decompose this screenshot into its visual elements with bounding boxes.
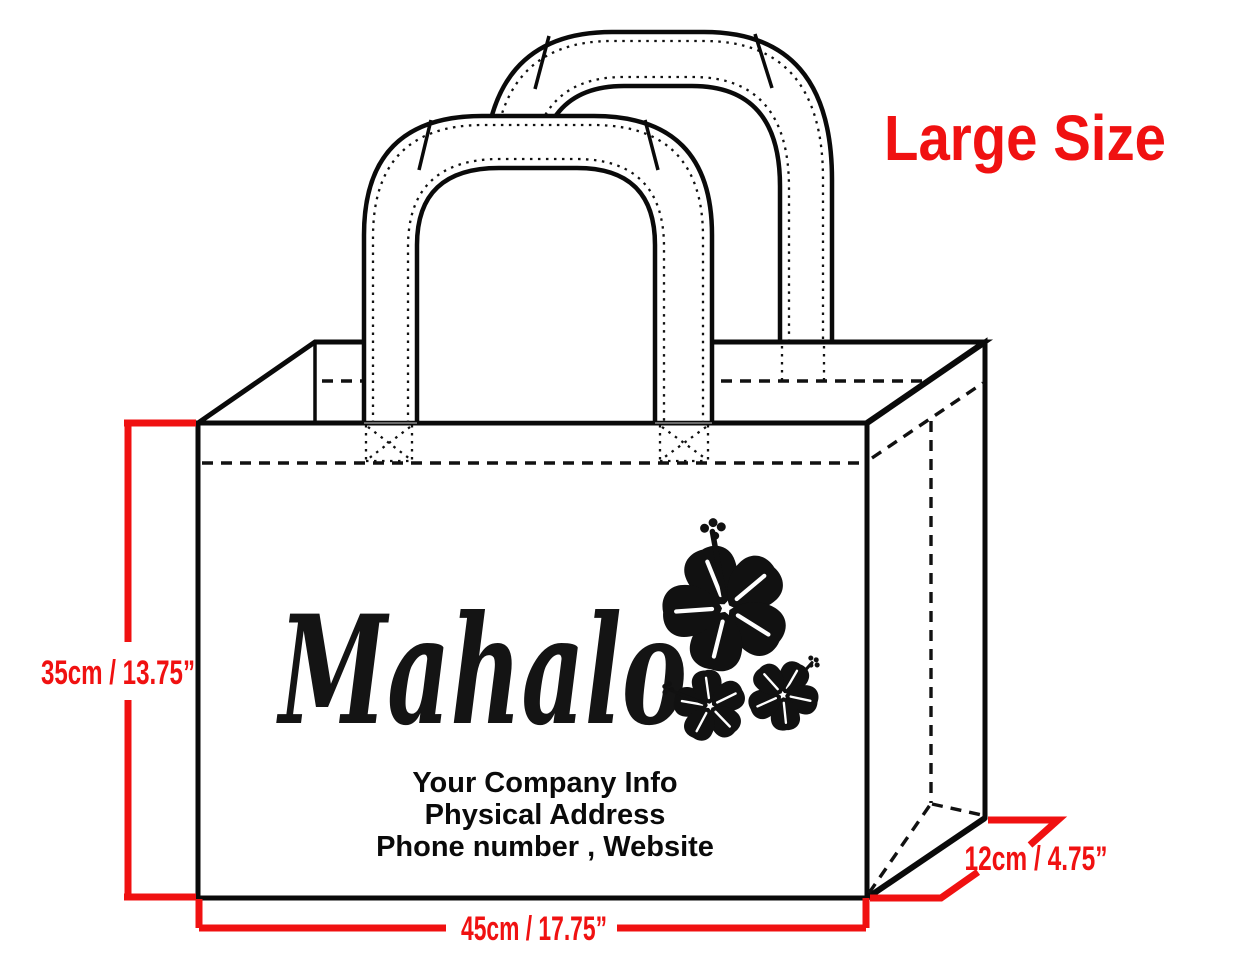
- tote-bag-size-diagram: Mahalo Your Company Info Physical Addres…: [0, 0, 1260, 980]
- right-side-gusset: [867, 342, 985, 898]
- height-dimension-label: 35cm / 13.75”: [41, 654, 195, 692]
- company-info-line-1: Your Company Info: [412, 767, 677, 799]
- company-info-line-2: Physical Address: [425, 799, 666, 831]
- bag-sketch-canvas: Mahalo Your Company Info Physical Addres…: [0, 0, 1260, 980]
- depth-dimension-label: 12cm / 4.75”: [965, 840, 1108, 878]
- company-info-block: Your Company Info Physical Address Phone…: [376, 767, 714, 863]
- front-handle: [364, 116, 712, 423]
- brand-script-text: Mahalo: [276, 583, 687, 759]
- width-dimension-label: 45cm / 17.75”: [461, 910, 607, 948]
- size-label: Large Size: [884, 102, 1166, 174]
- company-info-line-3: Phone number , Website: [376, 831, 714, 863]
- front-handle-inner-edge: [417, 168, 655, 423]
